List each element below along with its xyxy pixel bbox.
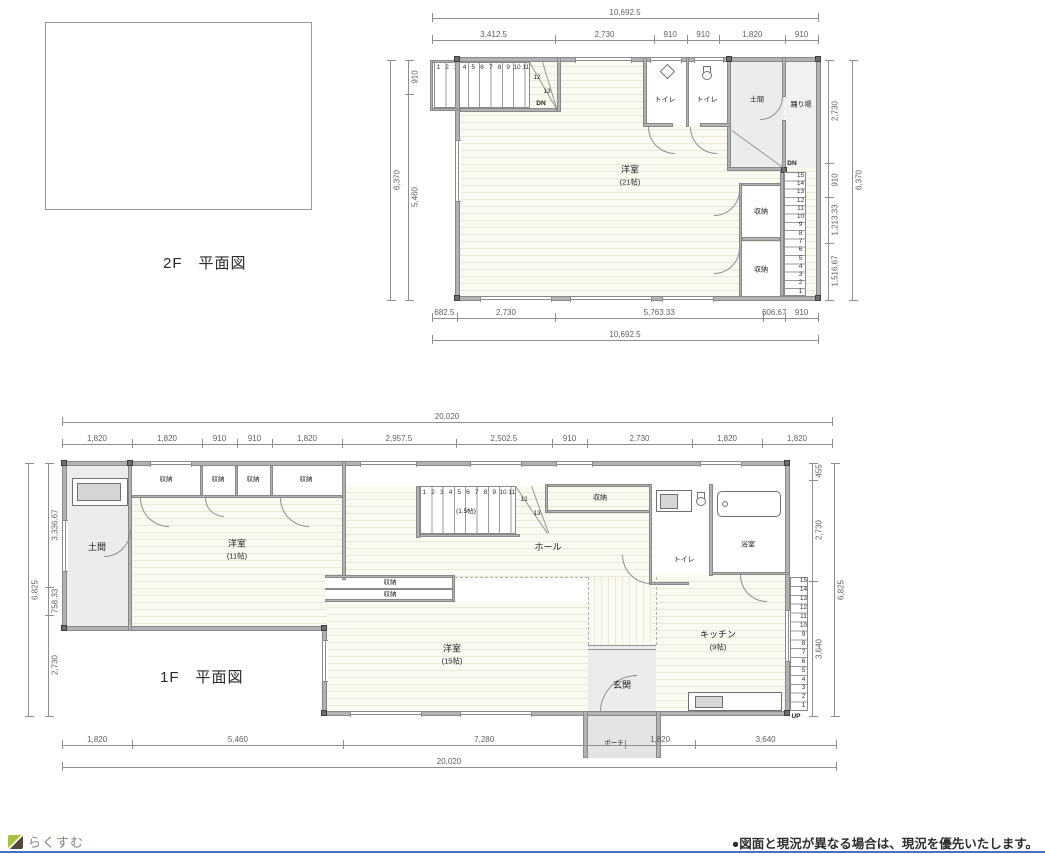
- stair-step-number: 10: [799, 622, 808, 631]
- room-label-2f-main: 洋室 (21帖): [620, 164, 641, 187]
- doma-storage: [72, 478, 128, 506]
- dim-segment: 682.5: [432, 306, 457, 318]
- stair-step-number: 11: [507, 490, 516, 500]
- stair-step-number: 6: [799, 657, 808, 666]
- stair-winder-13: 13: [543, 88, 550, 96]
- room-label-bath: 浴室: [741, 540, 755, 549]
- stairs-1f-numbers: 1234567891011: [420, 490, 516, 500]
- room-label-doma-2f: 土間: [750, 95, 764, 104]
- dim-segment: 910: [552, 432, 587, 444]
- room-label-closet-mid1: 収納: [384, 579, 397, 587]
- dim-segment: 20,020: [62, 755, 836, 767]
- dim-2f-right-segments: 2,7309101,213.331,516.67: [828, 60, 841, 300]
- stair-step-number: 12: [799, 604, 808, 613]
- post: [321, 625, 327, 631]
- dim-segment: 2,730: [813, 480, 825, 581]
- bathtub-icon: [717, 491, 781, 517]
- stairs-1f-right-numbers: 151413121110987654321: [799, 577, 808, 711]
- room-label-closet-lower: 収納: [754, 265, 768, 274]
- wall: [686, 57, 689, 127]
- dim-2f-bottom-segments: 682.52,7305,763.33606.67910: [432, 306, 818, 319]
- wall: [643, 57, 647, 127]
- dim-2f-bottom-total: 10,692.5: [432, 328, 818, 341]
- entrance-step-line: [588, 645, 656, 646]
- post: [815, 295, 821, 301]
- stair-dn-label: DN: [536, 100, 545, 108]
- stair-up-label: UP: [791, 713, 800, 721]
- post: [321, 710, 327, 716]
- stair-step-number: 10: [499, 490, 508, 500]
- wall: [420, 534, 520, 537]
- roof-outline: [45, 22, 312, 210]
- dim-segment: 6,825: [29, 463, 41, 716]
- post: [784, 460, 790, 466]
- stair-step-number: 8: [495, 65, 504, 75]
- dim-segment: 455: [813, 463, 825, 480]
- stair-step-number: 4: [460, 65, 469, 75]
- wall: [548, 484, 652, 487]
- stairs-2f-right-numbers: 151413121110987654321: [796, 172, 805, 296]
- stairs-2f-top-numbers: 1234567891011: [434, 65, 530, 75]
- site-logo: らくすむ: [8, 832, 84, 851]
- footer-notice: ●図面と現況が異なる場合は、現況を優先いたします。: [732, 833, 1038, 852]
- wall: [128, 461, 132, 631]
- window: [460, 712, 532, 717]
- wall: [782, 57, 786, 97]
- stair-step-number: 1: [434, 65, 443, 75]
- dim-1f-bottom-total: 20,020: [62, 755, 836, 768]
- dim-segment: 2,502.5: [456, 432, 552, 444]
- wall: [430, 108, 460, 111]
- dim-1f-top-segments: 1,8201,8209109101,8202,957.52,502.59102,…: [62, 432, 832, 445]
- vanity-counter: [656, 490, 692, 512]
- stair-step-number: 1: [799, 702, 808, 711]
- wall: [430, 60, 433, 111]
- stair-step-number: 4: [446, 490, 455, 500]
- room-label-toilet-left: トイレ: [655, 95, 676, 104]
- room-2f-landing-floor: [786, 60, 816, 168]
- stair-step-number: 10: [796, 213, 805, 221]
- post: [61, 625, 67, 631]
- wall: [649, 582, 689, 585]
- stair-dn-right-label: DN: [787, 160, 796, 168]
- stair-step-number: 2: [799, 693, 808, 702]
- window: [323, 640, 328, 682]
- room-label-bedroom-lower: 洋室 (15帖): [442, 643, 463, 666]
- stair-step-number: 5: [455, 490, 464, 500]
- stair-step-number: 13: [799, 595, 808, 604]
- stair-step-number: 3: [799, 684, 808, 693]
- room-label-kitchen: キッチン (9帖): [700, 629, 736, 652]
- dim-segment: 6,370: [853, 60, 865, 300]
- stair-winder-12: 12: [533, 74, 540, 82]
- room-label-doma-1f: 土間: [88, 542, 106, 554]
- window: [360, 462, 417, 467]
- stair-size-label: (1.5帖): [456, 508, 476, 516]
- toilet-icon: [702, 66, 712, 80]
- post: [726, 56, 732, 62]
- dim-segment: 2,730: [829, 60, 841, 163]
- room-label-entrance: 玄関: [613, 680, 631, 692]
- stair-step-number: 10: [513, 65, 522, 75]
- stair-winder-13: 13: [533, 510, 540, 518]
- wall: [235, 466, 238, 498]
- window: [456, 140, 461, 202]
- footer-accent-line: [0, 851, 1045, 853]
- room-2f-doma-floor: [730, 60, 784, 168]
- room-label-closet: 収納: [247, 476, 260, 484]
- dim-segment: 7,280: [343, 733, 624, 745]
- doma-storage-inner: [77, 483, 121, 501]
- wall: [727, 167, 786, 171]
- dashed-line: [588, 577, 589, 645]
- wall: [325, 588, 455, 590]
- kitchen-counter: [688, 692, 782, 711]
- dim-segment: 2,730: [555, 28, 654, 40]
- stair-step-number: 2: [443, 65, 452, 75]
- dim-segment: 3,640: [813, 581, 825, 716]
- stair-step-number: 2: [429, 490, 438, 500]
- stair-step-number: 12: [796, 197, 805, 205]
- stair-winder-12: 12: [520, 496, 527, 504]
- dim-2f-left-segments: 9105,460: [408, 60, 421, 300]
- wall: [342, 461, 346, 580]
- wall: [452, 575, 455, 602]
- stair-step-number: 7: [486, 65, 495, 75]
- window: [694, 58, 724, 63]
- stair-step-number: 11: [799, 613, 808, 622]
- stair-step-number: 8: [796, 230, 805, 238]
- stair-step-number: 9: [490, 490, 499, 500]
- room-label-closet: 収納: [160, 476, 173, 484]
- stair-step-number: 11: [796, 205, 805, 213]
- stair-step-number: 3: [437, 490, 446, 500]
- stair-step-number: 9: [799, 631, 808, 640]
- dim-segment: 1,516.67: [829, 243, 841, 300]
- dim-segment: 910: [785, 28, 818, 40]
- stair-step-number: 4: [796, 263, 805, 271]
- dim-2f-left-total: 6,370: [390, 60, 403, 300]
- dim-segment: 1,820: [762, 432, 832, 444]
- stair-step-number: 3: [796, 271, 805, 279]
- dim-1f-bottom-segments: 1,8205,4607,2801,8203,640: [62, 733, 836, 746]
- dim-segment: 5,763.33: [555, 306, 763, 318]
- stair-step-number: 4: [799, 675, 808, 684]
- window: [470, 462, 522, 467]
- window: [350, 712, 422, 717]
- stair-step-number: 7: [472, 490, 481, 500]
- post: [815, 56, 821, 62]
- room-label-landing: 踊り場: [791, 100, 812, 109]
- dim-segment: 1,820: [625, 733, 695, 745]
- dim-1f-left-segments: 3,336.67758.332,730: [48, 463, 61, 716]
- floorplan-canvas: 2F 平面図 10,692.5 3,412.52,7309109101,8209…: [0, 0, 1045, 854]
- room-label-toilet-right: トイレ: [697, 95, 718, 104]
- room-label-closet-upper: 収納: [754, 207, 768, 216]
- house-icon: [8, 835, 23, 849]
- dim-segment: 6,825: [835, 463, 847, 716]
- wall: [545, 484, 548, 513]
- window: [575, 58, 632, 63]
- stair-step-number: 9: [796, 222, 805, 230]
- wall: [727, 57, 731, 171]
- wall: [325, 575, 455, 578]
- logo-text: らくすむ: [28, 832, 84, 851]
- stair-step-number: 1: [796, 288, 805, 296]
- dim-segment: 5,460: [409, 94, 421, 300]
- window: [570, 297, 652, 302]
- room-label-closet: 収納: [212, 476, 225, 484]
- wall: [270, 466, 273, 498]
- stair-step-number: 5: [469, 65, 478, 75]
- window: [650, 58, 682, 63]
- stair-step-number: 14: [796, 180, 805, 188]
- stair-step-number: 15: [796, 172, 805, 180]
- wall: [742, 237, 780, 241]
- room-label-closet: 収納: [300, 476, 313, 484]
- stair-step-number: 5: [796, 255, 805, 263]
- wall: [709, 484, 713, 576]
- plan-1f-title: 1F 平面図: [160, 666, 244, 687]
- wall: [430, 60, 457, 63]
- dim-segment: 1,820: [132, 432, 202, 444]
- stair-step-number: 5: [799, 666, 808, 675]
- wall: [548, 510, 652, 513]
- dim-1f-right-total: 6,825: [834, 463, 847, 716]
- wall: [460, 108, 557, 112]
- stair-step-number: 11: [521, 65, 530, 75]
- dim-segment: 20,020: [62, 410, 832, 422]
- wall: [62, 626, 327, 631]
- post: [454, 56, 460, 62]
- dim-segment: 1,820: [62, 432, 132, 444]
- stair-step-number: 6: [796, 246, 805, 254]
- entrance-step-line: [588, 649, 656, 650]
- stair-step-number: 15: [799, 577, 808, 586]
- dim-segment: 6,370: [391, 60, 403, 300]
- dim-1f-right-segments: 4552,7303,640: [812, 463, 825, 716]
- wall: [742, 183, 780, 186]
- stair-step-number: 9: [504, 65, 513, 75]
- stair-step-number: 8: [799, 640, 808, 649]
- stair-step-number: 7: [796, 238, 805, 246]
- post: [454, 295, 460, 301]
- dashed-line: [656, 577, 657, 645]
- dim-segment: 3,336.67: [49, 463, 61, 587]
- stair-step-number: 6: [478, 65, 487, 75]
- dim-segment: 910: [829, 163, 841, 197]
- dim-segment: 910: [202, 432, 237, 444]
- dim-segment: 910: [654, 28, 687, 40]
- dim-2f-top-total: 10,692.5: [432, 6, 818, 19]
- dim-2f-right-total: 6,370: [852, 60, 865, 300]
- stair-step-number: 13: [796, 189, 805, 197]
- dim-segment: 1,820: [62, 733, 132, 745]
- dim-segment: 5,460: [132, 733, 343, 745]
- window: [480, 297, 552, 302]
- plan-2f-title: 2F 平面図: [163, 252, 247, 273]
- stair-step-number: 6: [464, 490, 473, 500]
- window: [556, 462, 593, 467]
- dim-segment: 1,213.33: [829, 197, 841, 243]
- dim-1f-top-total: 20,020: [62, 410, 832, 423]
- dim-1f-left-total: 6,825: [28, 463, 41, 716]
- dim-segment: 910: [237, 432, 272, 444]
- wall: [416, 486, 420, 538]
- stair-step-number: 7: [799, 649, 808, 658]
- dim-segment: 2,957.5: [342, 432, 456, 444]
- dim-segment: 10,692.5: [432, 328, 818, 340]
- kitchen-sink: [695, 696, 723, 708]
- toilet-icon: [696, 492, 706, 506]
- dim-segment: 1,820: [272, 432, 342, 444]
- vanity-sink: [660, 494, 678, 509]
- dim-segment: 758.33: [49, 587, 61, 615]
- dim-segment: 3,640: [695, 733, 836, 745]
- wall: [200, 466, 203, 498]
- wall: [557, 57, 561, 112]
- window: [700, 462, 742, 467]
- stair-step-number: 1: [420, 490, 429, 500]
- wall: [455, 57, 821, 62]
- wall: [325, 599, 455, 602]
- stair-step-number: 8: [481, 490, 490, 500]
- dim-segment: 910: [687, 28, 720, 40]
- wall: [782, 120, 786, 171]
- dim-segment: 1,820: [692, 432, 762, 444]
- dim-2f-top-segments: 3,412.52,7309109101,820910: [432, 28, 818, 41]
- dim-segment: 10,692.5: [432, 6, 818, 18]
- dim-segment: 910: [409, 60, 421, 94]
- stair-step-number: 2: [796, 279, 805, 287]
- room-label-toilet-1f: トイレ: [674, 555, 695, 564]
- room-label-hall-closet: 収納: [593, 493, 607, 502]
- wall: [816, 57, 821, 301]
- dim-segment: 910: [785, 306, 818, 318]
- post: [127, 460, 133, 466]
- room-label-hall: ホール: [534, 542, 561, 554]
- window: [662, 297, 714, 302]
- room-1f-corridor-floor: [588, 577, 658, 645]
- dim-segment: 2,730: [49, 615, 61, 716]
- room-label-bedroom-upper: 洋室 (11帖): [227, 538, 247, 561]
- room-label-closet-mid2: 収納: [384, 591, 397, 599]
- window: [63, 520, 68, 572]
- dashed-line: [455, 577, 588, 578]
- dim-segment: 2,730: [457, 306, 556, 318]
- dim-segment: 3,412.5: [432, 28, 555, 40]
- dim-segment: 2,730: [587, 432, 692, 444]
- post: [61, 460, 67, 466]
- dim-segment: 1,820: [719, 28, 785, 40]
- dim-segment: 606.67: [763, 306, 785, 318]
- window: [150, 462, 192, 467]
- stair-step-number: 14: [799, 586, 808, 595]
